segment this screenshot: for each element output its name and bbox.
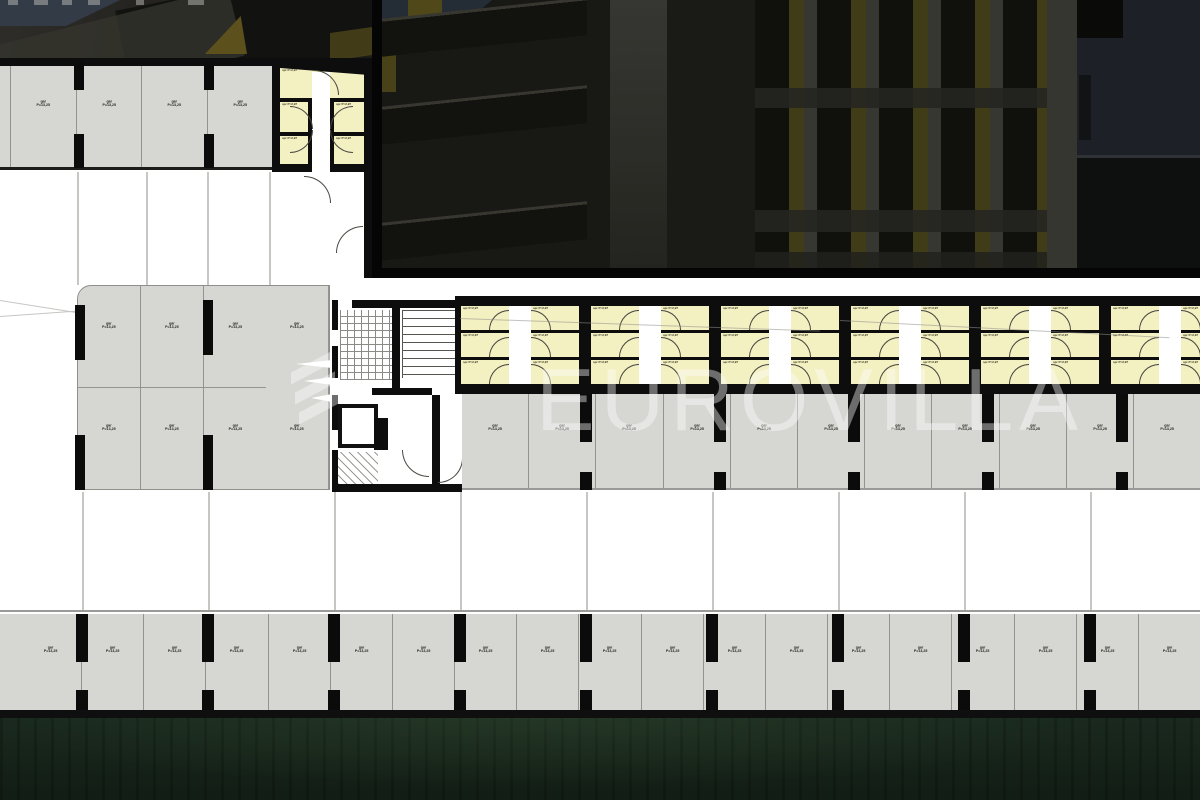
stair-core [332,300,462,492]
storage-room: spr P=2,97 [721,360,769,384]
parking-row-top: garP=13,25 garP=13,25 garP=13,25 garP=13… [0,66,272,170]
yellow-facade-sliver [330,27,372,58]
storage-room: spr P=2,97 [1051,360,1099,384]
parking-space: garP=13,25 [77,66,143,167]
structural-column [203,300,213,355]
storage-room: spr P=2,97 [1111,360,1159,384]
parking-space: garP=13,25 [517,614,579,710]
door-arc [1051,364,1071,384]
door-opening [1029,296,1051,306]
space-area: P=13,25 [157,650,194,654]
space-area: P=13,25 [1027,650,1064,654]
structural-column [454,690,466,712]
floor-plan-page: garP=13,25 garP=13,25 garP=13,25 garP=13… [0,0,1200,800]
door-arc [661,337,681,357]
structural-column [580,394,592,442]
cropped-text-mark [62,0,72,5]
storage-unit: spr P=2,97 spr P=2,97 spr P=2,97 spr P=2… [715,306,845,384]
parking-space: garP=13,25 [890,614,952,710]
door-arc [1181,310,1200,330]
door-arc [1051,310,1071,330]
structural-column [204,62,214,90]
storage-room: spr P=2,97 [791,360,839,384]
storage-room: spr P=2,97 [461,333,509,360]
storage-room: spr P=2,97 [591,333,639,360]
structural-column [203,435,213,490]
door-arc [1159,296,1181,297]
storage-unit: spr P=2,97 spr P=2,97 spr P=2,97 spr P=2… [1105,306,1200,384]
space-area: P=13,25 [155,104,194,108]
storage-room: spr P=2,97 [1111,306,1159,333]
space-area: P=13,25 [1147,428,1187,432]
parking-space: garP=13,25 [731,394,798,488]
door-arc [1139,337,1159,357]
space-area: P=13,25 [94,650,131,654]
space-area: P=13,25 [279,326,316,330]
grid-line [712,492,714,612]
space-area: P=13,25 [219,650,256,654]
space-area: P=13,25 [89,104,128,108]
door-arc [1181,364,1200,384]
door-arc [791,337,811,357]
grid-line [207,172,209,285]
door-arc [749,364,769,384]
grid-line [208,492,210,612]
storage-column-left: spr P=2,97 spr P=2,97 spr P=2,97 [981,306,1029,384]
parking-space: garP=13,25 [1134,394,1200,488]
storage-room: spr P=2,97 [851,306,899,333]
space-area: P=13,25 [220,104,259,108]
space-area: P=13,25 [654,650,691,654]
core-wall [352,300,462,308]
parking-space: garP=13,25 [269,614,331,710]
door-arc [1051,337,1071,357]
grid-line [82,492,84,612]
parking-row-bottom: garP=13,25 garP=13,25 garP=13,25 garP=13… [0,614,1200,710]
door-arc [769,296,791,297]
storage-room: spr P=2,97 [461,360,509,384]
storage-room: spr P=2,97 [1181,360,1200,384]
parking-space: garP=13,25 [206,614,268,710]
door-arc [290,130,313,153]
space-area: P=13,25 [281,650,318,654]
storage-column-right: spr P=2,97 spr P=2,97 spr P=2,97 [531,306,579,384]
grass-strip [0,718,1200,800]
structural-column [982,394,994,442]
parking-space: garP=13,25 [20,614,82,710]
storage-room: spr P=2,97 [791,333,839,360]
door-opening [769,296,791,306]
parking-space: garP=13,25 [142,66,208,167]
parking-space: garP=13,25 [596,394,663,488]
room-hatch [338,452,378,484]
space-area: P=13,25 [1151,650,1188,654]
core-wall [332,300,338,330]
door-arc [639,296,661,297]
space-area: P=13,25 [1013,428,1053,432]
space-area: P=13,25 [1080,428,1120,432]
structural-column [328,614,340,662]
parking-space: garP=13,25 [865,394,932,488]
parking-space: garP=13,25 [462,394,529,488]
parking-space: garP=13,25 [208,66,273,167]
door-opening [639,296,661,306]
parking-space: garP=13,25 [266,388,329,490]
cropped-text-mark [34,0,48,5]
storage-room: spr P=2,97 [721,333,769,360]
storage-room: spr P=2,97 [531,306,579,333]
door-arc [879,337,899,357]
door-arc [921,310,941,330]
door-arc [661,364,681,384]
space-id: gar [232,424,238,428]
door-arc [921,337,941,357]
storage-room: spr P=2,97 [591,360,639,384]
storage-column-left: spr P=2,97 spr P=2,97 spr P=2,97 [591,306,639,384]
space-area: P=13,25 [216,326,254,330]
parking-space-group: garP=13,25 garP=13,25 garP=13,25 garP=13… [11,66,272,167]
parking-space: garP=13,25 [642,614,704,710]
space-area: P=13,25 [475,428,515,432]
parking-space: garP=13,25 [141,388,204,490]
door-arc [1009,337,1029,357]
dark-block [374,418,388,450]
door-arc [749,337,769,357]
space-area: P=13,25 [153,427,190,431]
storage-room: spr P=2,97 [531,360,579,384]
space-id: gar [106,424,112,428]
unit-corridor [509,306,531,384]
structural-column [580,690,592,712]
door-arc [1009,310,1029,330]
door-arc [1029,296,1051,297]
storage-room: spr P=2,97 [851,360,899,384]
grid-line [77,172,79,285]
structural-column [204,134,214,168]
door-opening [899,296,921,306]
row-top-line [0,610,1200,612]
door-arc [402,450,429,477]
unit-corridor [899,306,921,384]
door-arc [438,458,463,483]
corridor-wall [364,172,372,278]
building-photo [372,0,1200,278]
space-area: P=13,25 [90,326,127,330]
storage-room: spr P=2,97 [921,333,969,360]
grid-line [146,172,148,285]
storage-room: spr P=2,97 [851,333,899,360]
structural-column [832,690,844,712]
storage-room: spr P=2,97 [661,360,709,384]
space-area: P=13,25 [778,650,815,654]
door-arc [921,364,941,384]
storage-column-left: spr P=2,97 spr P=2,97 spr P=2,97 [851,306,899,384]
door-arc [619,310,639,330]
grid-line [460,492,462,612]
structural-column [76,614,88,662]
door-arc [879,364,899,384]
space-area: P=13,25 [677,428,717,432]
structural-column [958,690,970,712]
parking-space: garP=13,25 [11,66,77,167]
storage-room: spr P=2,97 [981,360,1029,384]
parking-space: garP=13,25 [1000,394,1067,488]
space-area: P=13,25 [153,326,190,330]
door-arc [531,337,551,357]
parking-space: garP=13,25 [141,286,204,388]
unit-corridor [1159,306,1181,384]
storage-unit: spr P=2,97 spr P=2,97 spr P=2,97 spr P=2… [585,306,715,384]
door-arc [619,364,639,384]
parking-space: garP=13,25 [393,614,455,710]
door-arc [1139,364,1159,384]
space-area: P=13,25 [343,650,380,654]
space-area: P=13,25 [279,427,316,431]
cropped-text-mark [188,0,204,5]
space-area: P=13,25 [744,428,784,432]
structural-column [202,690,214,712]
storage-room: spr P=2,97 [661,306,709,333]
outer-wall-bottom [0,710,1200,718]
space-id: gar [169,424,175,428]
storage-column-right: spr P=2,97 spr P=2,97 spr P=2,97 [661,306,709,384]
structural-column [75,305,85,360]
storage-column-right: spr P=2,97 spr P=2,97 spr P=2,97 [1181,306,1200,384]
core-wall [372,388,432,395]
storage-room: spr P=2,97 [661,333,709,360]
structural-column [1084,614,1096,662]
storage-cluster: spr P=2,97 spr P=2,97 spr P=2,97 spr P=2… [272,58,372,172]
structural-column [982,472,994,490]
door-arc [791,364,811,384]
structural-column [580,614,592,662]
door-opening [509,296,531,306]
space-area: P=13,25 [592,650,629,654]
parking-space-partial [0,614,21,710]
parking-space: garP=13,25 [78,388,141,490]
structural-column [958,614,970,662]
parking-row-middle: garP=13,25 garP=13,25 garP=13,25 garP=13… [462,394,1200,490]
parking-space: garP=13,25 [1015,614,1077,710]
structural-column [706,614,718,662]
cropped-text-mark [88,0,100,5]
photo-top-left-strip [0,0,372,58]
storage-room: spr P=2,97 [981,333,1029,360]
space-area: P=13,25 [32,650,69,654]
door-arc [489,364,509,384]
door-arc [661,310,681,330]
photo-dim-overlay [382,0,1200,268]
structural-column [454,614,466,662]
parking-space: garP=13,25 [144,614,206,710]
door-arc [619,337,639,357]
storage-room: spr P=2,97 [1181,306,1200,333]
storage-column-right: spr P=2,97 spr P=2,97 spr P=2,97 [1051,306,1099,384]
elevator-shaft [338,404,378,448]
core-wall [332,484,462,492]
door-opening [1159,296,1181,306]
core-wall [392,308,400,392]
door-arc [1181,337,1200,357]
parking-space-group: garP=13,25 garP=13,25 garP=13,25 garP=13… [20,614,1200,710]
structural-column [1116,472,1128,490]
door-arc [879,310,899,330]
structural-column [714,472,726,490]
storage-column-right: spr P=2,97 spr P=2,97 spr P=2,97 [791,306,839,384]
door-arc [899,296,921,297]
cropped-text-mark [8,0,18,5]
cropped-text-mark [136,0,144,5]
storage-room: spr P=2,97 [1051,306,1099,333]
structural-column [74,62,84,90]
parking-space: garP=13,25 [331,614,393,710]
storage-room: spr P=2,97 [1181,333,1200,360]
door-arc [489,337,509,357]
storage-room: spr P=2,97 [591,306,639,333]
parking-space: garP=13,25 [766,614,828,710]
door-arc [1009,364,1029,384]
space-area: P=13,25 [811,428,851,432]
storage-room: spr P=2,97 [921,306,969,333]
structural-column [74,134,84,168]
unit-corridor [1029,306,1051,384]
space-area: P=13,25 [840,650,877,654]
space-area: P=13,25 [90,427,127,431]
unit-corridor [769,306,791,384]
structural-column [1084,690,1096,712]
door-arc [749,310,769,330]
door-arc [1139,310,1159,330]
door-arc [531,364,551,384]
parking-space-partial [0,66,11,167]
structural-column [1116,394,1128,442]
door-arc [791,310,811,330]
parking-space: garP=13,25 [78,286,141,388]
grid-line [964,492,966,612]
space-area: P=13,25 [610,428,650,432]
door-arc [290,106,313,129]
space-area: P=13,25 [946,428,986,432]
stair-flight [402,310,455,378]
storage-unit: spr P=2,97 spr P=2,97 spr P=2,97 spr P=2… [845,306,975,384]
unit-corridor [639,306,661,384]
grid-line [269,172,271,285]
grid-line [1090,492,1092,612]
structural-column [714,394,726,442]
space-area: P=13,25 [467,650,504,654]
space-area: P=13,25 [529,650,566,654]
structural-column [832,614,844,662]
space-area: P=13,25 [24,104,63,108]
grid-line [334,492,336,612]
corridor-horizontal [332,278,1200,298]
space-area: P=13,25 [405,650,442,654]
storage-unit: spr P=2,97 spr P=2,97 spr P=2,97 spr P=2… [975,306,1105,384]
grid-line [586,492,588,612]
structural-column [580,472,592,490]
space-area: P=13,25 [216,427,254,431]
structural-column [706,690,718,712]
space-area: P=13,25 [878,428,918,432]
space-area: P=13,25 [902,650,939,654]
parking-space: garP=13,25 [82,614,144,710]
structural-column [848,394,860,442]
storage-column-right: spr P=2,97 spr P=2,97 spr P=2,97 [921,306,969,384]
storage-band: spr P=2,97 spr P=2,97 spr P=2,97 spr P=2… [455,296,1200,394]
storage-room: spr P=2,97 [1051,333,1099,360]
storage-room: spr P=2,97 [531,333,579,360]
storage-column-left: spr P=2,97 spr P=2,97 spr P=2,97 [1111,306,1159,384]
core-wall [332,346,338,378]
structural-column [328,690,340,712]
space-area: P=13,25 [716,650,753,654]
storage-room: spr P=2,97 [921,360,969,384]
space-id: gar [294,424,300,428]
structural-column [848,472,860,490]
parking-space: garP=13,25 [266,286,329,388]
parking-space: garP=13,25 [1139,614,1200,710]
space-area: P=13,25 [542,428,582,432]
shaft-hatch [340,310,392,380]
space-area: P=13,25 [965,650,1002,654]
structural-column [202,614,214,662]
structural-column [75,435,85,490]
door-arc [509,296,531,297]
grid-line [838,492,840,612]
structural-column [76,690,88,712]
storage-column-left: spr P=2,97 spr P=2,97 spr P=2,97 [721,306,769,384]
